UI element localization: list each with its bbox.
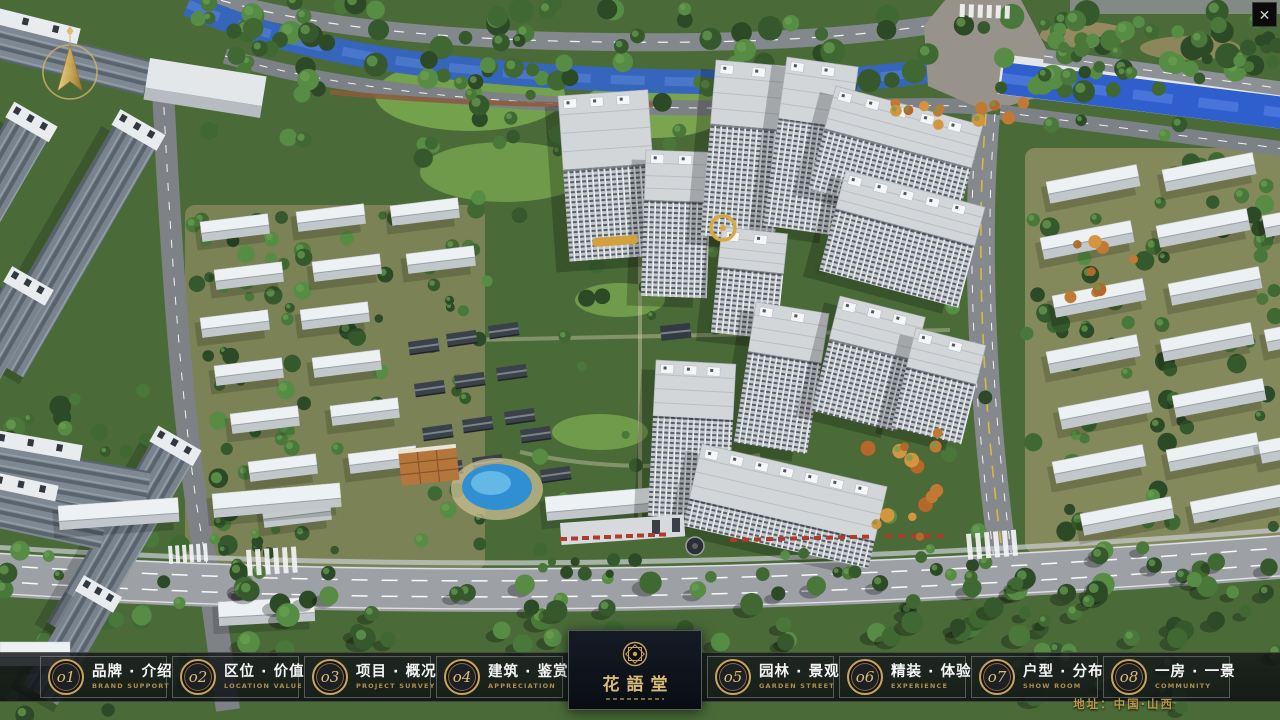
nav-label-en: BRAND SUPPORT [92, 682, 159, 690]
nav-number-badge: o7 [979, 659, 1015, 695]
nav-number-badge: o1 [48, 659, 84, 695]
nav-item-one-house-one-view[interactable]: o8 一房 · 一景 COMMUNITY [1103, 656, 1230, 698]
nav-number-badge: o8 [1111, 659, 1147, 695]
nav-number-badge: o4 [444, 659, 480, 695]
nav-item-interior-experience[interactable]: o6 精装 · 体验 EXPERIENCE [839, 656, 966, 698]
bottom-nav-bar: o1 品牌 · 介绍 BRAND SUPPORT o2 区位 · 价值 LOCA… [0, 652, 1280, 702]
nav-label-en: GARDEN STREET [759, 682, 826, 690]
nav-item-floorplan-distribution[interactable]: o7 户型 · 分布 SHOW ROOM [971, 656, 1098, 698]
nav-item-garden-landscape[interactable]: o5 园林 · 景观 GARDEN STREET [707, 656, 834, 698]
nav-label-zh: 园林 · 景观 [759, 664, 826, 681]
nav-number-badge: o2 [180, 659, 216, 695]
close-button[interactable]: ✕ [1252, 2, 1277, 27]
nav-label-zh: 区位 · 价值 [224, 664, 291, 681]
nav-label-zh: 精装 · 体验 [891, 664, 958, 681]
project-logo[interactable]: 花語堂 [568, 630, 702, 710]
compass-north-icon [40, 26, 100, 104]
logo-seal-icon [622, 641, 648, 667]
nav-number-badge: o6 [847, 659, 883, 695]
project-address: 地址：中国·山西 [1073, 696, 1174, 712]
nav-label-zh: 项目 · 概况 [356, 664, 423, 681]
nav-label-en: APPRECIATION [488, 682, 555, 690]
logo-subtext-line [606, 698, 664, 700]
nav-number-badge: o3 [312, 659, 348, 695]
masterplan-3d-view[interactable] [0, 0, 1280, 720]
nav-label-en: PROJECT SURVEY [356, 682, 423, 690]
nav-label-en: LOCATION VALUE [224, 682, 291, 690]
nav-label-zh: 一房 · 一景 [1155, 664, 1222, 681]
nav-label-zh: 建筑 · 鉴赏 [488, 664, 555, 681]
nav-label-en: COMMUNITY [1155, 682, 1222, 690]
logo-title: 花語堂 [596, 670, 675, 695]
nav-item-project-overview[interactable]: o3 项目 · 概况 PROJECT SURVEY [304, 656, 431, 698]
app-window: ✕ o1 品牌 · 介绍 BRAND SUPPORT o2 区位 · 价值 LO… [0, 0, 1280, 720]
nav-number-badge: o5 [715, 659, 751, 695]
nav-label-en: EXPERIENCE [891, 682, 958, 690]
nav-label-zh: 品牌 · 介绍 [92, 664, 159, 681]
nav-item-location-value[interactable]: o2 区位 · 价值 LOCATION VALUE [172, 656, 299, 698]
nav-item-brand-intro[interactable]: o1 品牌 · 介绍 BRAND SUPPORT [40, 656, 167, 698]
nav-label-en: SHOW ROOM [1023, 682, 1090, 690]
nav-item-architecture-appreciation[interactable]: o4 建筑 · 鉴赏 APPRECIATION [436, 656, 563, 698]
nav-label-zh: 户型 · 分布 [1023, 664, 1090, 681]
